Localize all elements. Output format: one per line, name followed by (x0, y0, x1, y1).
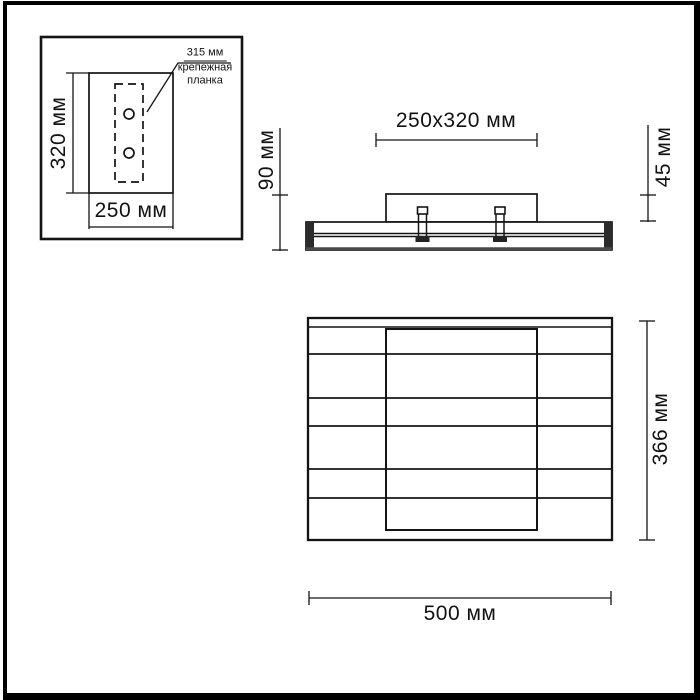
front-height-dimension-label: 366 мм (649, 393, 673, 466)
screw-hole-top (124, 109, 134, 119)
total-height-dimension-label: 90 мм (255, 130, 279, 191)
bar-end-cap-left (306, 222, 314, 250)
drawing-linework (0, 0, 700, 700)
canopy-side-outline (386, 194, 537, 222)
bracket-note: 315 мм крепежная планка (178, 47, 233, 88)
inset-width-dimension-label: 250 мм (95, 199, 168, 223)
screw-hole-bottom (124, 148, 134, 158)
canopy-size-dimension-label: 250x320 мм (396, 109, 516, 133)
bracket-note-word1: крепежная (178, 62, 233, 74)
inset-height-dimension-label: 320 мм (47, 97, 71, 170)
bracket-note-word2: планка (187, 75, 223, 87)
dimension-drawing: 320 мм 250 мм 315 мм крепежная планка 25… (0, 0, 700, 700)
bar-end-cap-right (604, 222, 612, 250)
front-width-dimension-label: 500 мм (424, 602, 497, 626)
canopy-height-dimension-label: 45 мм (652, 127, 676, 188)
bracket-note-size: 315 мм (184, 47, 227, 62)
fixture-front-outline (308, 318, 612, 540)
